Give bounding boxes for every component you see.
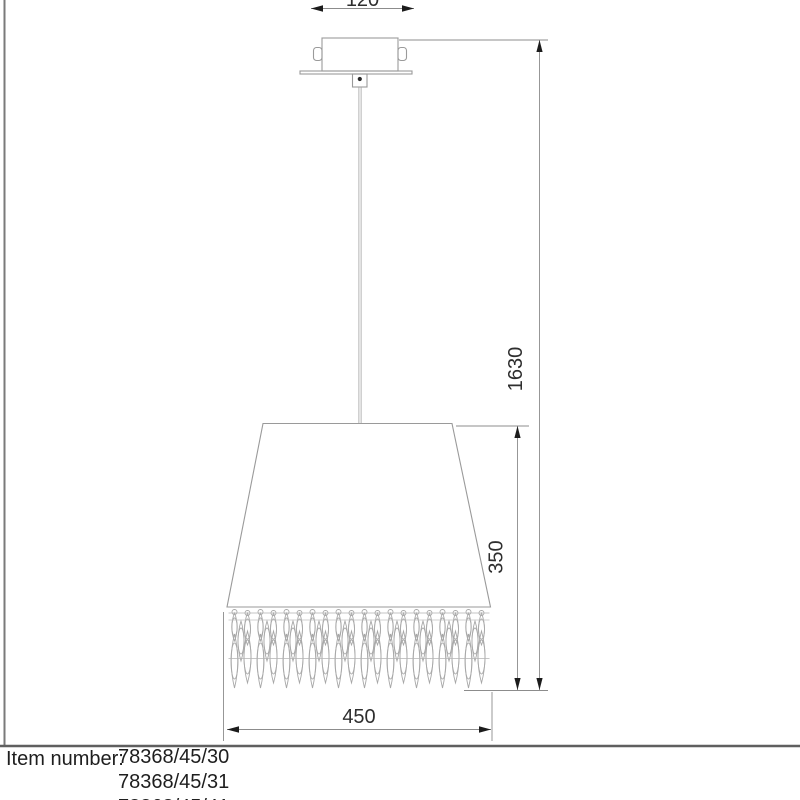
- suspension-cable: [359, 87, 361, 423]
- item-number: 78368/45/30: [118, 745, 229, 770]
- arrow-right: [479, 726, 491, 732]
- cable-grip-screw: [358, 77, 362, 81]
- dim-label-120: 120: [346, 0, 379, 11]
- item-number-list: 78368/45/30 78368/45/31 78368/45/41: [118, 745, 229, 800]
- item-number: 78368/45/31: [118, 770, 229, 795]
- canopy-clip-left: [314, 48, 323, 61]
- arrow-left: [227, 726, 239, 732]
- item-number-label: Item number:: [6, 748, 124, 771]
- arrow-left: [311, 5, 323, 11]
- technical-drawing-page: 120 1630 350 450 Item: [0, 0, 800, 800]
- canopy-box: [322, 38, 398, 71]
- dimension-canopy-width: 120: [311, 0, 414, 12]
- arrow-down: [514, 678, 520, 690]
- arrow-up: [536, 40, 542, 52]
- arrow-up: [514, 426, 520, 438]
- lampshade: [227, 424, 491, 608]
- canopy-clip-right: [398, 48, 407, 61]
- item-number: 78368/45/41: [118, 795, 229, 800]
- dim-label-450: 450: [342, 706, 375, 728]
- lamp-technical-drawing: 120 1630 350 450: [0, 0, 800, 800]
- ceiling-canopy: [300, 38, 412, 87]
- dim-label-1630: 1630: [505, 347, 527, 392]
- arrow-right: [402, 5, 414, 11]
- dim-label-350: 350: [486, 540, 508, 573]
- crystal-fringe: [228, 607, 490, 690]
- arrow-down: [536, 678, 542, 690]
